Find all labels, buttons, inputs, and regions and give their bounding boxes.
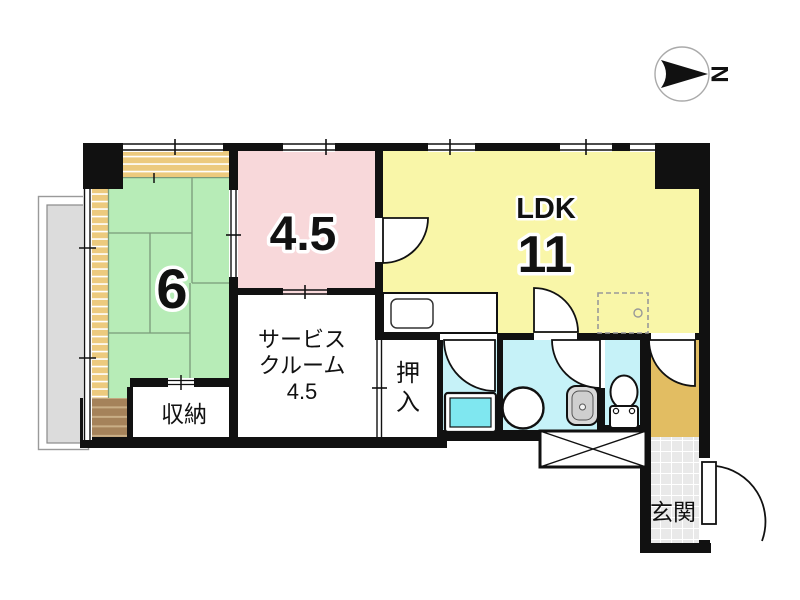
engawa-top-strip [123,151,229,178]
washing-machine-pan [445,393,496,432]
genkan-floor [650,437,699,543]
toilet [610,376,638,429]
tatami-sliver [108,387,127,398]
compass-north-label: N [706,65,733,82]
wood-step [88,398,127,437]
service-room-size-label: 4.5 [287,379,318,404]
round-tub [503,388,544,429]
floorplan-page: 6 4.5 LDK 11 サービス クルーム 4.5 押 入 収納 玄関 N [0,0,800,600]
kitchen-sink [391,299,433,328]
ldk-label: LDK [516,193,576,225]
window-ldk-top-3 [630,142,655,152]
floorplan-svg: 6 4.5 LDK 11 サービス クルーム 4.5 押 入 収納 玄関 N [0,0,800,600]
service-room-label-line2: クルーム [259,353,346,378]
tatami-size-label: 6 [156,257,187,320]
service-room-label-line1: サービス [258,327,346,352]
storage-label: 収納 [161,401,207,427]
pink-room-size-label: 4.5 [270,208,337,261]
ldk-size-label: 11 [518,226,573,284]
shoe-box [540,431,646,467]
oshiire-label-char2: 入 [396,389,420,416]
genkan-label: 玄関 [650,499,696,525]
vanity-sink [567,386,598,425]
kitchen-counter [383,293,497,333]
oshiire-label-char1: 押 [396,360,420,387]
